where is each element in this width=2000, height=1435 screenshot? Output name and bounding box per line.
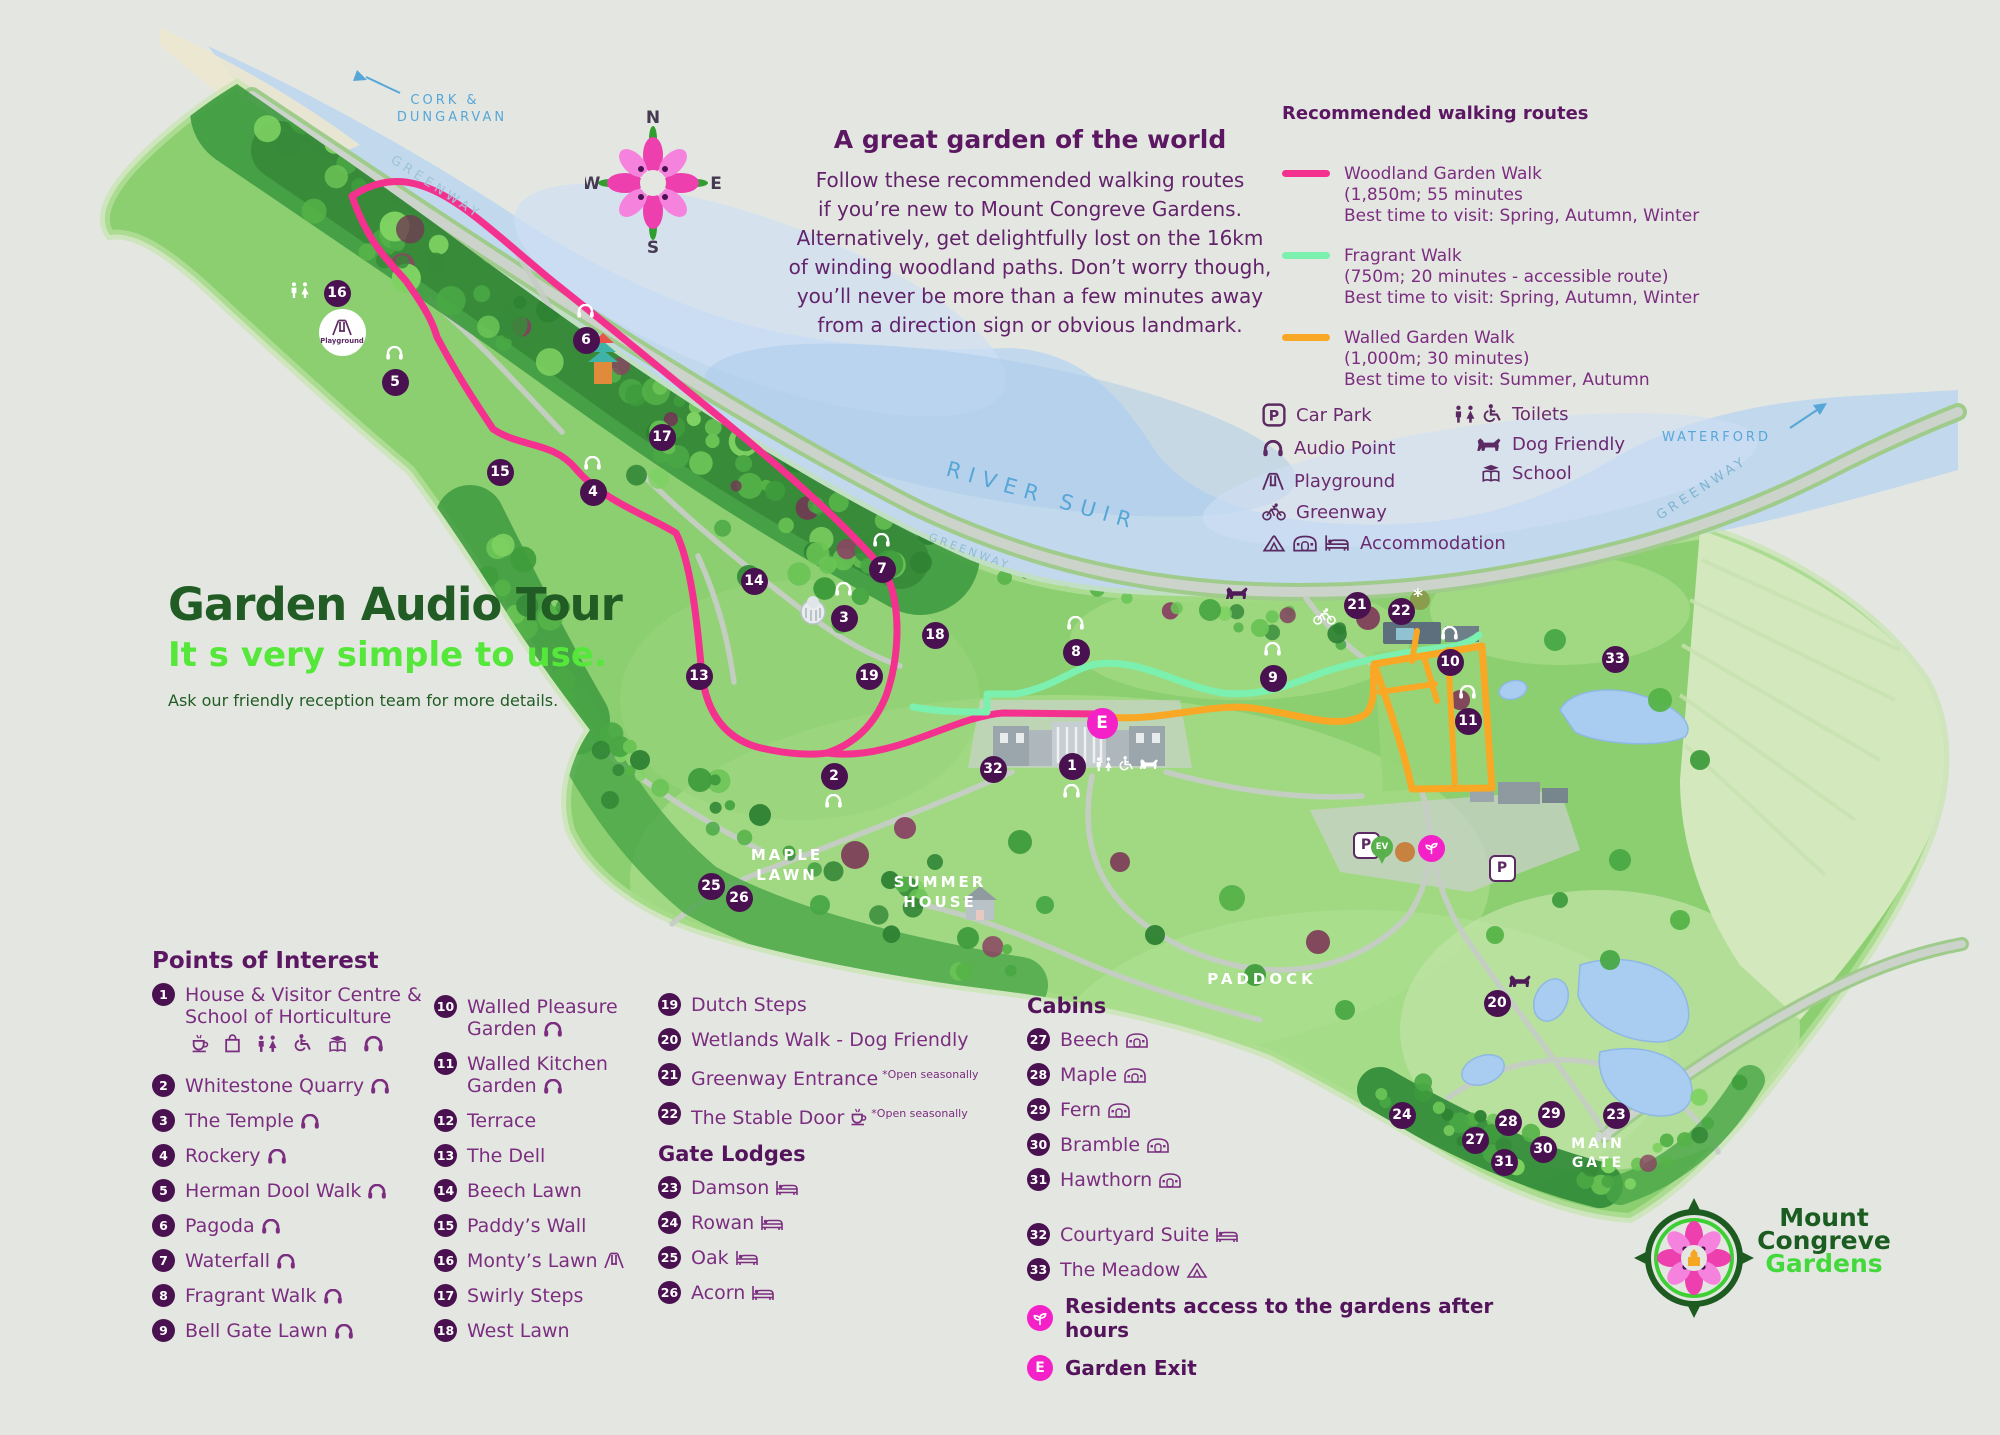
logo-wordmark: Mount Congreve Gardens bbox=[1756, 1206, 1892, 1275]
audio-point-icon-3 bbox=[834, 581, 853, 600]
audio-point-icon-6 bbox=[576, 303, 595, 322]
logo-line3: Gardens bbox=[1756, 1252, 1892, 1275]
toilets-icon bbox=[1094, 757, 1114, 772]
map-marker-30: 30 bbox=[1530, 1136, 1557, 1163]
audio-point-icon bbox=[1458, 685, 1477, 699]
map-marker-6: 6 bbox=[573, 327, 600, 354]
map-marker-19: 19 bbox=[856, 663, 883, 690]
map-marker-10: 10 bbox=[1437, 649, 1464, 676]
map-marker-23: 23 bbox=[1603, 1102, 1630, 1129]
dog-icon bbox=[1225, 586, 1249, 600]
audio-point-icon bbox=[1440, 626, 1459, 640]
audio-point-icon-9 bbox=[1263, 641, 1282, 660]
audio-point-icon bbox=[1066, 616, 1085, 630]
map-marker-11: 11 bbox=[1455, 708, 1482, 735]
open-seasonally-asterisk: * bbox=[1413, 585, 1423, 607]
greenway-cyclist-marker bbox=[1313, 608, 1336, 629]
map-marker-16: 16 bbox=[324, 280, 351, 307]
audio-point-icon bbox=[872, 533, 891, 547]
map-marker-7: 7 bbox=[869, 556, 896, 583]
map-marker-28: 28 bbox=[1495, 1109, 1522, 1136]
map-marker-31: 31 bbox=[1491, 1149, 1518, 1176]
audio-point-icon-1 bbox=[1062, 783, 1081, 802]
map-marker-4: 4 bbox=[580, 479, 607, 506]
map-marker-25: 25 bbox=[698, 873, 725, 900]
map-marker-15: 15 bbox=[487, 459, 514, 486]
audio-point-icon bbox=[1263, 642, 1282, 656]
dog-icon bbox=[1508, 974, 1532, 988]
garden-map-poster: CORK & DUNGARVAN GREENWAY RIVER SUIR GRE… bbox=[0, 0, 2000, 1435]
map-marker-5: 5 bbox=[382, 369, 409, 396]
mount-congreve-logo-flower bbox=[1632, 1196, 1756, 1320]
map-marker-21: 21 bbox=[1344, 592, 1371, 619]
visitor-centre-facility-icons bbox=[1094, 756, 1159, 772]
audio-point-icon-7 bbox=[872, 532, 891, 551]
map-marker-13: 13 bbox=[686, 663, 713, 690]
map-marker-26: 26 bbox=[726, 885, 753, 912]
map-marker-9: 9 bbox=[1260, 665, 1287, 692]
toilets-marker bbox=[289, 282, 311, 303]
audio-point-icon-4 bbox=[583, 455, 602, 474]
map-marker-27: 27 bbox=[1462, 1127, 1489, 1154]
ev-charging-marker: EV bbox=[1371, 836, 1393, 858]
map-marker-17: 17 bbox=[649, 424, 676, 451]
playground-badge-label: Playground bbox=[320, 337, 364, 345]
map-marker-14: 14 bbox=[741, 568, 768, 595]
map-marker-18: 18 bbox=[922, 622, 949, 649]
playground-marker: Playground bbox=[319, 309, 366, 356]
audio-point-icon-2 bbox=[824, 793, 843, 812]
map-marker-1: 1 bbox=[1059, 753, 1086, 780]
greenway-bike-icon bbox=[1313, 608, 1336, 625]
audio-point-icon-5 bbox=[385, 345, 404, 364]
map-marker-24: 24 bbox=[1389, 1102, 1416, 1129]
residents-access-marker bbox=[1418, 835, 1445, 862]
garden-exit-marker: E bbox=[1087, 708, 1118, 739]
audio-point-icon bbox=[576, 304, 595, 318]
toilets-icon bbox=[289, 282, 311, 299]
map-marker-2: 2 bbox=[821, 763, 848, 790]
audio-point-icon bbox=[834, 582, 853, 596]
car-park-marker-2: P bbox=[1489, 855, 1516, 882]
audio-point-icon-11 bbox=[1458, 684, 1477, 703]
map-marker-32: 32 bbox=[980, 756, 1007, 783]
map-marker-3: 3 bbox=[831, 605, 858, 632]
playground-icon bbox=[332, 319, 352, 336]
dog-icon bbox=[1139, 758, 1159, 770]
audio-point-icon bbox=[385, 346, 404, 360]
wheelchair-icon bbox=[1119, 756, 1134, 772]
residents-plant-icon bbox=[1424, 841, 1439, 855]
map-marker-33: 33 bbox=[1602, 646, 1629, 673]
map-marker-22: 22 bbox=[1388, 598, 1415, 625]
map-marker-8: 8 bbox=[1063, 639, 1090, 666]
audio-point-icon-10 bbox=[1440, 625, 1459, 644]
audio-point-icon bbox=[583, 456, 602, 470]
audio-point-icon-8 bbox=[1066, 615, 1085, 634]
dog-friendly-marker-1 bbox=[1225, 585, 1249, 604]
audio-point-icon bbox=[1062, 784, 1081, 798]
audio-point-icon bbox=[824, 794, 843, 808]
dog-friendly-marker-2 bbox=[1508, 973, 1532, 992]
map-marker-20: 20 bbox=[1484, 990, 1511, 1017]
map-marker-29: 29 bbox=[1538, 1101, 1565, 1128]
